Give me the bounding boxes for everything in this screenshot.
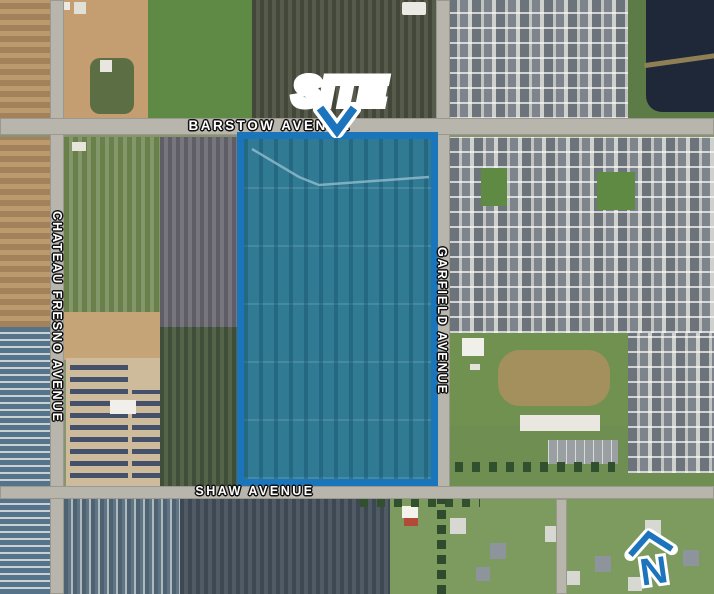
region-park-2 (597, 172, 635, 210)
farm-shed-left (72, 142, 86, 151)
industrial-rows-2 (132, 390, 162, 478)
region-orchard-mid-upper (160, 137, 238, 327)
farmhouse-top (402, 2, 426, 15)
region-housing-topright (448, 0, 630, 119)
label-shaw-avenue: SHAW AVENUE (180, 483, 330, 499)
site-arrow-icon (313, 102, 361, 138)
church-south (402, 506, 418, 518)
shaw-tree-row (360, 499, 480, 507)
industrial-building (110, 400, 136, 414)
region-vineyard-bottom-left (0, 499, 50, 594)
region-furrows-topleft (0, 0, 55, 119)
region-housing-right (450, 137, 714, 333)
region-green-right-edge (628, 473, 714, 486)
church-building (462, 338, 484, 356)
north-arrow-icon: N (618, 524, 686, 592)
region-orchard-left-green (64, 137, 160, 312)
school-tree-row (455, 462, 615, 472)
site-dirt-path (244, 139, 431, 479)
label-chateau-fresno-avenue: CHATEAU FRESNO AVENUE (49, 202, 65, 432)
parking-lot (548, 440, 618, 464)
region-dry-patch (498, 350, 610, 406)
region-vineyard-left (0, 327, 50, 486)
church-south-roof (404, 518, 418, 526)
region-farm-trees (90, 58, 134, 114)
site-boundary (237, 132, 438, 486)
region-orchard-bottom-light (64, 499, 180, 594)
road-shaw (0, 486, 714, 499)
north-label-text: N (637, 549, 670, 592)
region-orchard-bottom-dark (180, 499, 390, 594)
label-garfield-avenue: GARFIELD AVENUE (434, 236, 450, 406)
region-park-1 (481, 168, 507, 206)
garfield-trees-south (437, 499, 446, 594)
industrial-rows-1 (70, 365, 128, 478)
region-dirt-left (64, 312, 160, 360)
aerial-site-map: SITE BARSTOW AVENUE SHAW AVENUE CHATEAU … (0, 0, 714, 594)
road-minor-south (556, 499, 567, 594)
school-buildings (520, 415, 600, 431)
region-field-left-brown (0, 137, 50, 327)
region-housing-right-lower (628, 333, 714, 473)
region-green-field-top (148, 0, 252, 119)
region-orchard-mid-lower (160, 327, 238, 486)
